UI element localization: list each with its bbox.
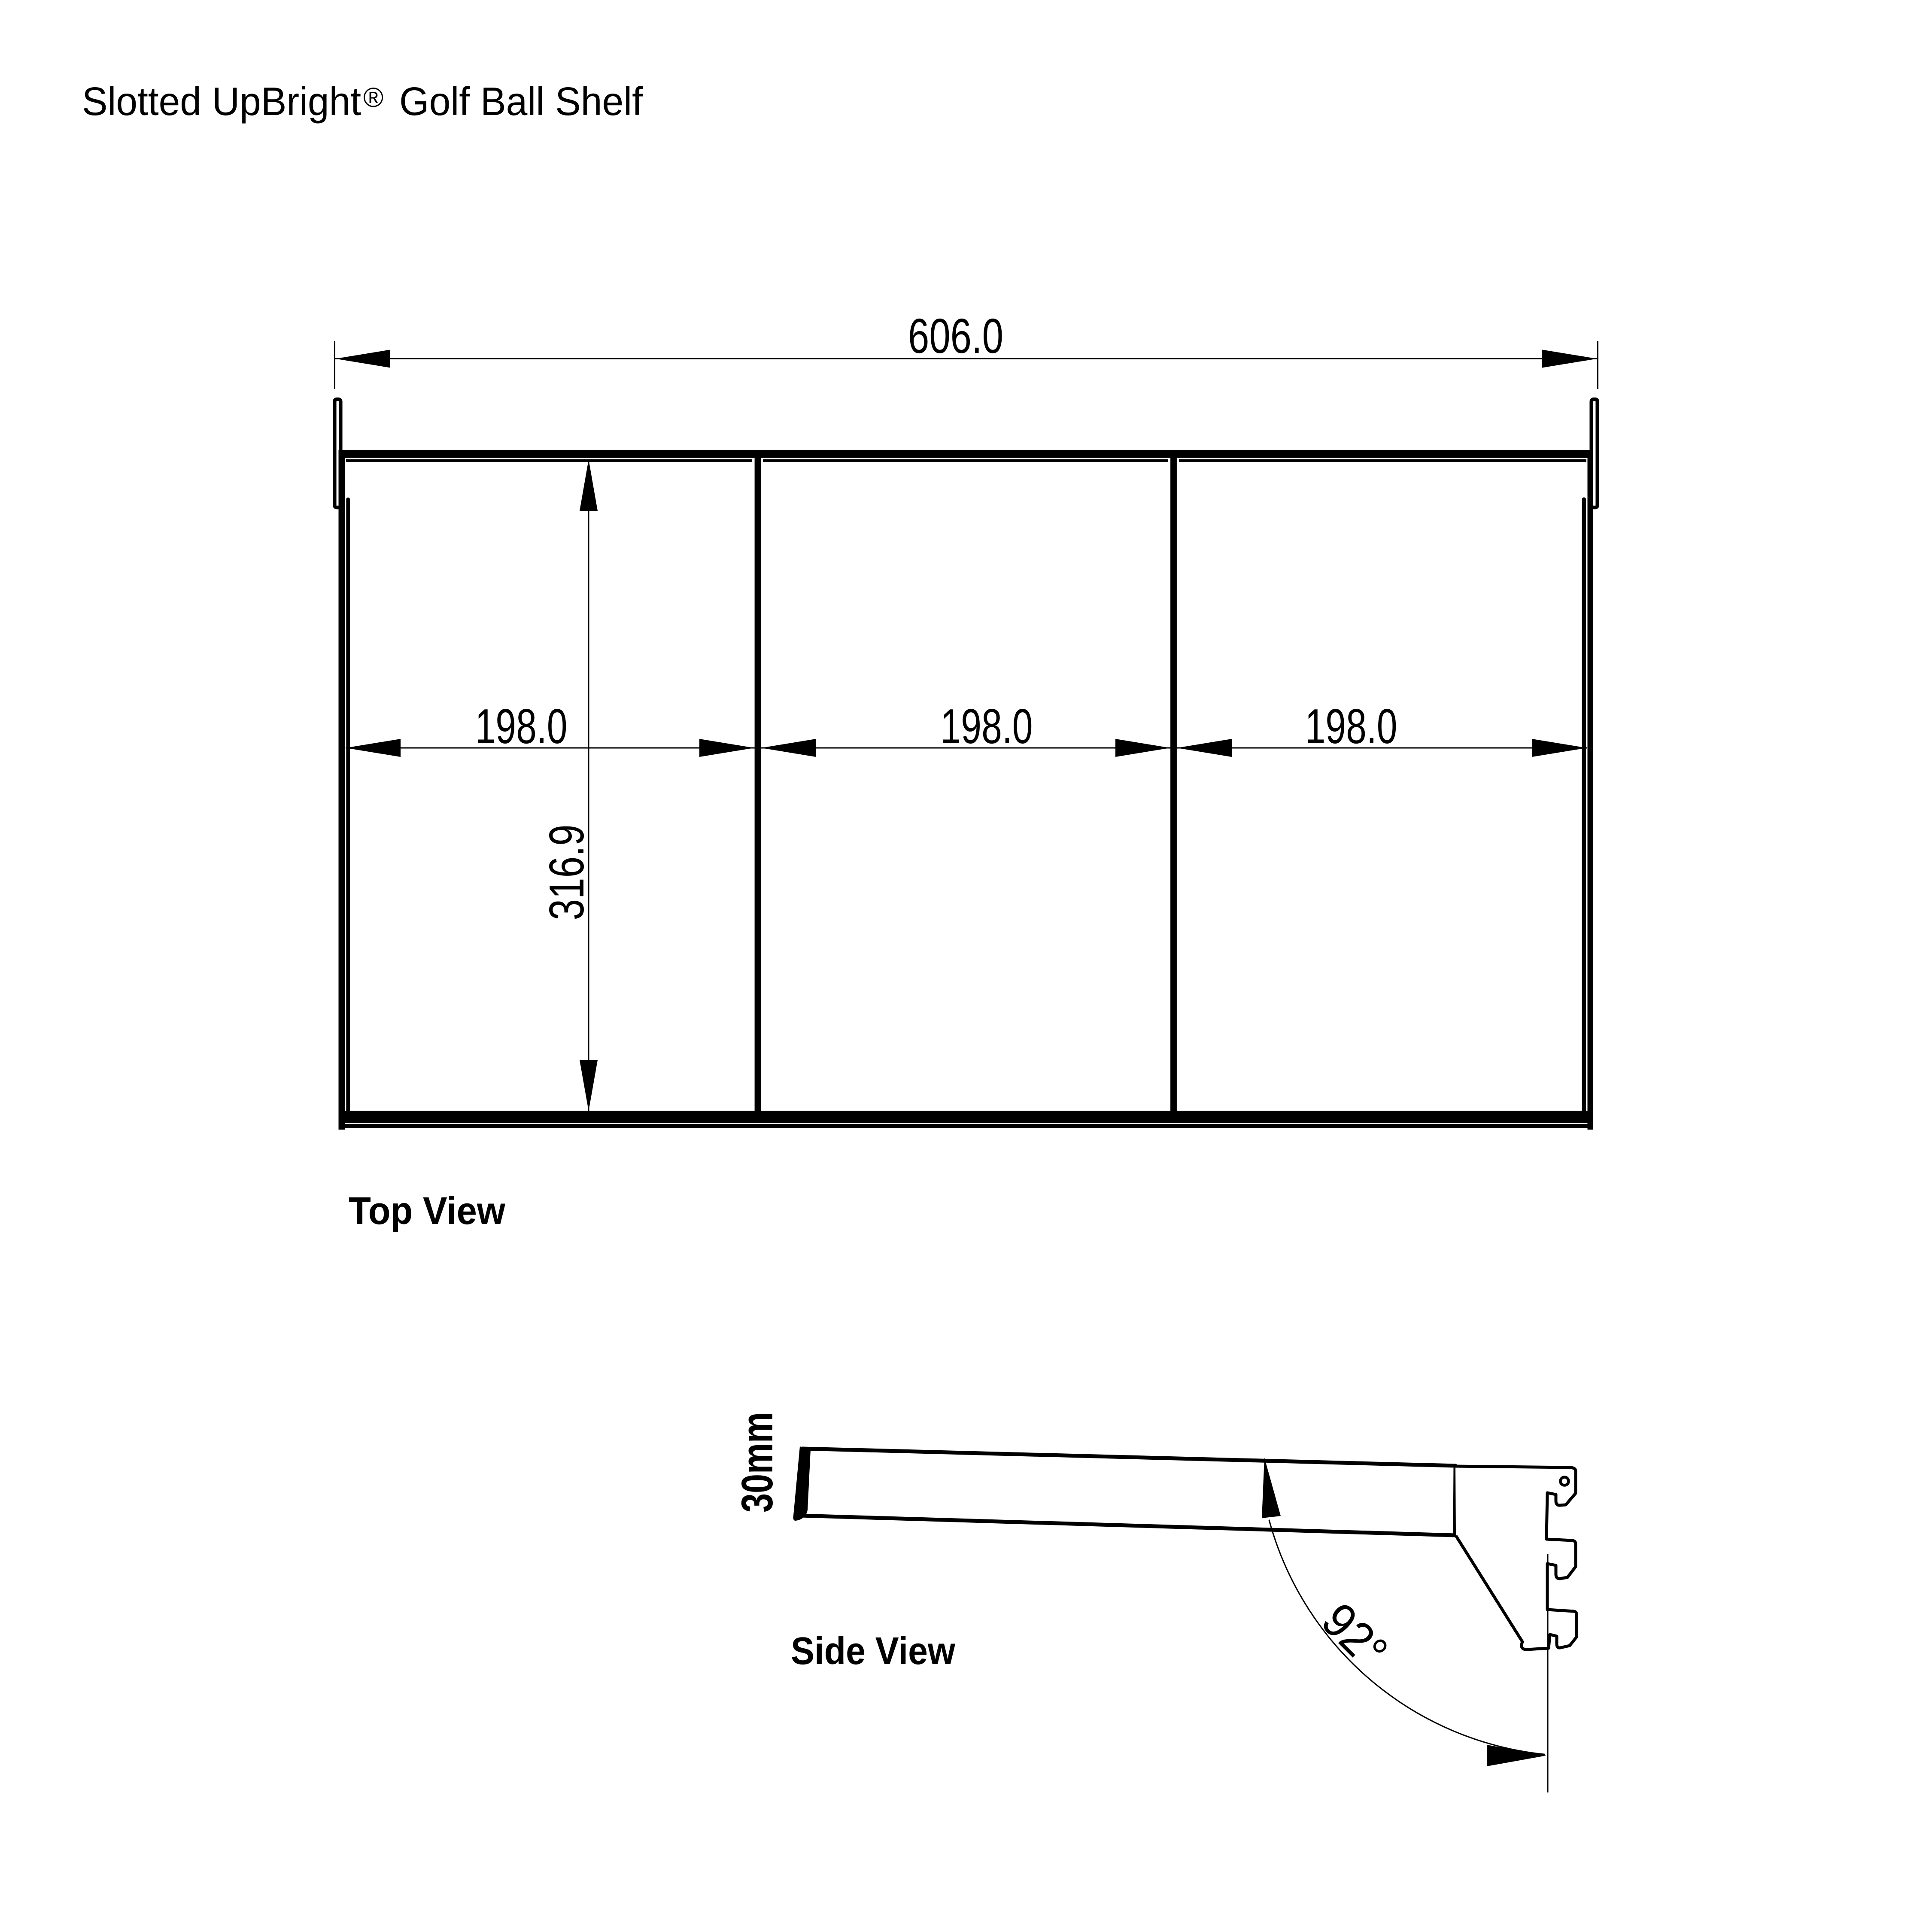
- svg-text:®: ®: [363, 82, 383, 113]
- svg-text:Slotted UpBright: Slotted UpBright: [82, 79, 361, 124]
- svg-text:Side View: Side View: [791, 1630, 956, 1673]
- svg-text:Top View: Top View: [349, 1190, 506, 1233]
- svg-text:198.0: 198.0: [1305, 699, 1397, 754]
- svg-text:606.0: 606.0: [908, 309, 1003, 364]
- svg-text:198.0: 198.0: [475, 699, 568, 754]
- svg-text:198.0: 198.0: [941, 699, 1033, 754]
- svg-text:30mm: 30mm: [732, 1412, 782, 1513]
- svg-text:316.9: 316.9: [540, 825, 594, 920]
- svg-text:Golf Ball Shelf: Golf Ball Shelf: [399, 79, 643, 124]
